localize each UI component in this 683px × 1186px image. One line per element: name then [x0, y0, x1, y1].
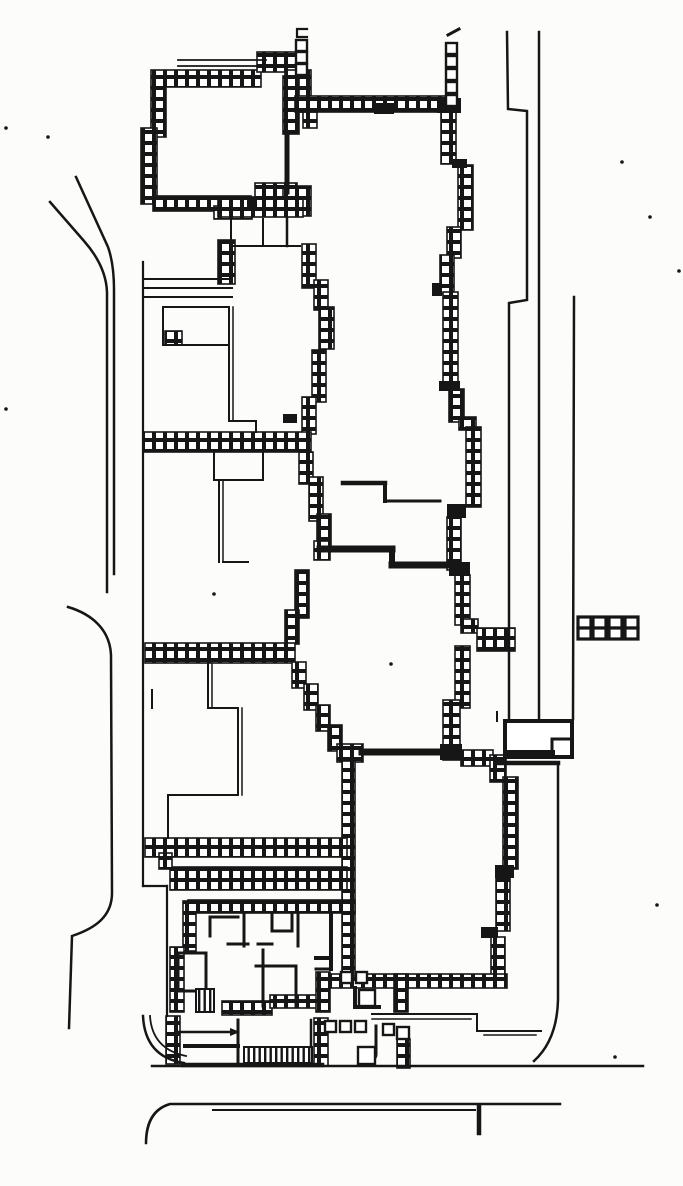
hatched-wall [302, 397, 316, 434]
solid-wall-block [374, 103, 394, 114]
scan-speck [212, 592, 216, 596]
double-pier-block [593, 628, 606, 639]
hatched-wall [145, 838, 347, 857]
column-pier-square [397, 1027, 409, 1039]
hatched-wall [312, 350, 326, 402]
double-pier-block [593, 617, 606, 628]
scan-speck [46, 135, 50, 139]
column-pier-square [358, 1047, 375, 1064]
hatched-wall [170, 867, 347, 890]
double-pier-block [578, 617, 591, 628]
solid-wall-block [495, 865, 514, 878]
hatched-wall [270, 995, 318, 1008]
stairs-hatch [196, 989, 214, 1012]
column-pier-square [446, 82, 457, 93]
hatched-wall [145, 643, 295, 663]
column-pier-square [296, 64, 307, 75]
plan-line [573, 297, 574, 719]
scan-speck [4, 126, 8, 130]
double-pier-block [625, 617, 638, 628]
hatched-wall [319, 307, 334, 349]
hatched-wall [314, 280, 328, 310]
column-pier-square [446, 95, 457, 106]
solid-wall-block [452, 159, 467, 168]
hatched-wall [285, 610, 299, 644]
solid-wall-block [447, 504, 466, 518]
scanned-plan-page [0, 0, 683, 1186]
column-pier-square [296, 52, 307, 63]
hatched-wall [503, 777, 518, 869]
hatched-wall [394, 974, 408, 1012]
solid-wall-block [439, 381, 460, 391]
floor-plan-svg [0, 0, 683, 1186]
hatched-wall [303, 112, 317, 128]
hatched-wall [455, 575, 470, 625]
column-pier-square [446, 69, 457, 80]
scan-speck [389, 662, 393, 666]
hatched-wall [461, 619, 478, 633]
stairs-hatch [244, 1047, 312, 1063]
pier-blocks-layer [578, 617, 638, 639]
hatched-wall [141, 128, 157, 204]
scan-speck [620, 160, 624, 164]
hatched-wall [218, 197, 303, 217]
hatched-wall [151, 70, 261, 87]
column-pier-square [356, 972, 367, 983]
scan-speck [648, 215, 652, 219]
hatched-wall [316, 972, 330, 1012]
double-pier-block [578, 628, 591, 639]
column-pier-square [296, 40, 307, 51]
hatched-wall [491, 937, 505, 979]
hatched-wall [458, 165, 473, 230]
column-pier-square [355, 1021, 366, 1032]
column-pier-square [383, 1024, 394, 1035]
double-pier-block [609, 617, 622, 628]
hatched-wall [159, 853, 172, 869]
solid-wall-block [283, 414, 297, 423]
paper-background [0, 0, 683, 1186]
column-pier-square [325, 1021, 336, 1032]
scan-speck [613, 1055, 617, 1059]
hatched-wall [466, 427, 481, 507]
solid-wall-block [247, 197, 257, 211]
scan-speck [4, 407, 8, 411]
hatched-wall [461, 750, 493, 766]
solid-wall-block [481, 927, 498, 938]
hatched-wall [455, 646, 470, 708]
hatched-wall [257, 52, 299, 72]
hatched-wall [447, 227, 461, 258]
hatched-wall [441, 112, 456, 164]
column-pier-square [446, 56, 457, 67]
hatched-wall [165, 331, 182, 345]
hatched-wall [143, 432, 311, 452]
hatched-wall [440, 255, 454, 294]
column-pier-square [340, 1021, 351, 1032]
hatched-wall [397, 1039, 410, 1068]
column-pier-square [446, 43, 457, 54]
double-pier-block [625, 628, 638, 639]
hatched-wall [496, 876, 510, 931]
scan-speck [677, 269, 681, 273]
column-pier-square [341, 972, 352, 983]
hatched-wall [443, 292, 458, 384]
double-pier-block [609, 628, 622, 639]
solid-wall-block [432, 283, 442, 296]
scan-speck [655, 903, 659, 907]
column-pier-square [359, 990, 375, 1006]
hatched-wall [166, 1016, 180, 1064]
